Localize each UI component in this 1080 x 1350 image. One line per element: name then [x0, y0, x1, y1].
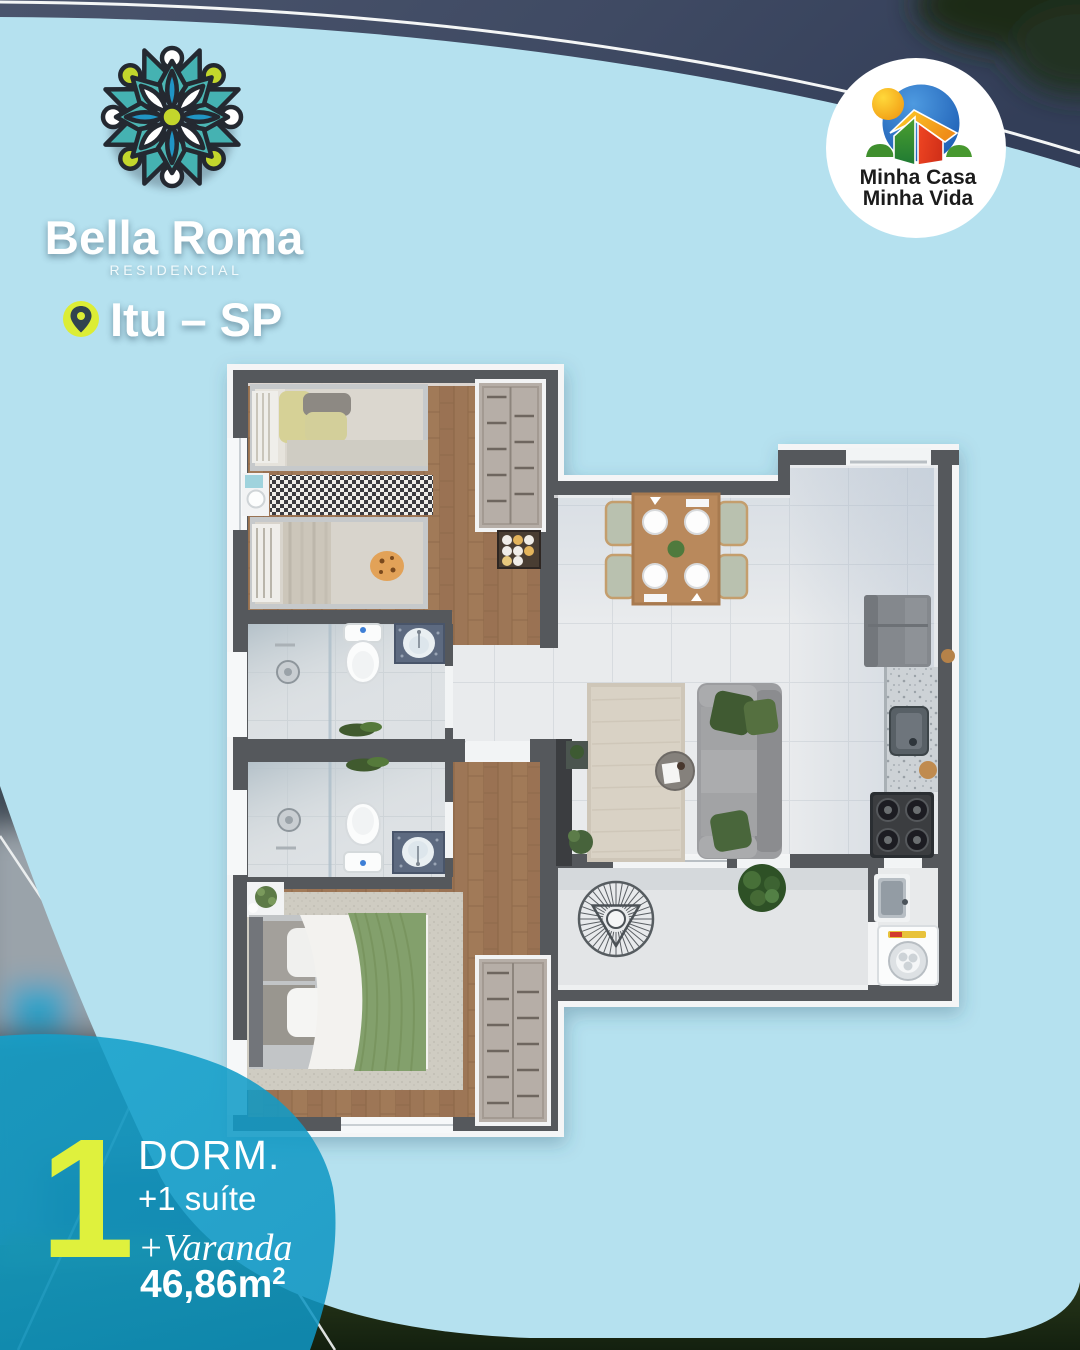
- svg-text:1: 1: [40, 1104, 135, 1294]
- svg-text:+1 suíte: +1 suíte: [138, 1180, 256, 1217]
- svg-text:46,86m2: 46,86m2: [140, 1263, 286, 1306]
- svg-text:Minha Vida: Minha Vida: [863, 187, 974, 210]
- svg-text:Bella Roma: Bella Roma: [45, 212, 304, 265]
- svg-text:DORM.: DORM.: [138, 1132, 281, 1178]
- svg-text:Minha Casa: Minha Casa: [860, 166, 977, 189]
- svg-text:Itu – SP: Itu – SP: [110, 293, 282, 346]
- svg-text:RESIDENCIAL: RESIDENCIAL: [110, 262, 243, 278]
